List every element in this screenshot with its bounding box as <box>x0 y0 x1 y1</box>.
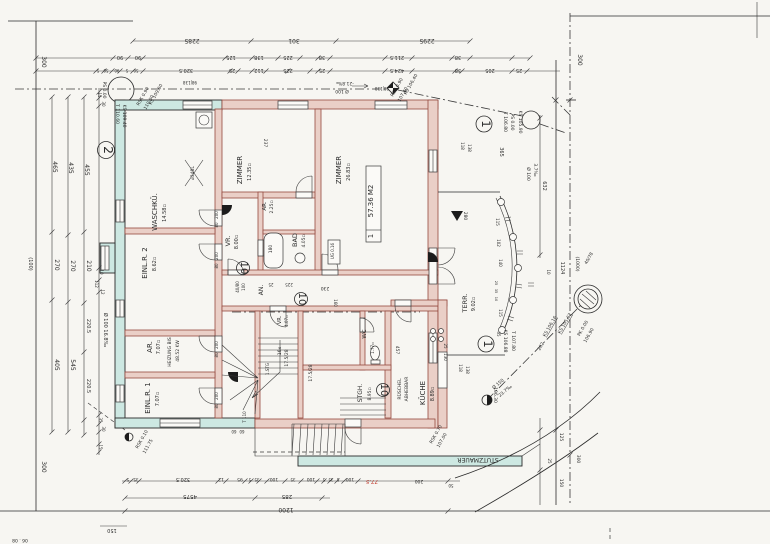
plan-label: T 106.80 <box>502 111 508 132</box>
stove-burner <box>439 329 444 334</box>
plan-label: AN. <box>258 285 265 296</box>
plan-label: 115 <box>495 218 500 226</box>
plan-label: 1 <box>367 234 375 238</box>
plan-label: 8.00▫ <box>234 235 240 250</box>
plan-label: 200 <box>214 392 219 400</box>
plan-label: 1124 <box>559 262 565 275</box>
plan-label: 95 <box>237 476 243 482</box>
plan-label: 9.02▫ <box>471 297 477 312</box>
plan-label: 35 <box>98 417 103 423</box>
plan-label: 112 <box>254 67 264 73</box>
plan-label: 320.5 <box>176 476 190 482</box>
plan-label: 06 . 08 <box>12 537 28 543</box>
plan-label: 12 <box>218 476 224 482</box>
plan-label: 4575 <box>183 493 197 499</box>
stove-burner <box>439 337 444 342</box>
plan-label: 220.5 <box>85 379 91 393</box>
plan-label: 1.STG <box>265 363 270 375</box>
plan-label: STUTZMAUER <box>457 456 498 463</box>
plan-label: 40/78 <box>583 251 595 265</box>
plan-label: 300 <box>575 455 581 464</box>
plan-label: 35 <box>494 289 498 293</box>
label-layer: 22853012295909012513822538211.5385509055… <box>12 37 596 543</box>
plan-label: 15 <box>98 444 103 450</box>
plan-label: 25 <box>443 343 448 349</box>
plan-label: 200 <box>214 341 219 349</box>
plan-label: 38 <box>319 54 325 60</box>
plan-label: 25 <box>268 282 274 287</box>
plan-label: 26.83▫ <box>346 163 352 181</box>
plan-label: 35 <box>290 477 296 482</box>
plan-label: ZIMMER <box>335 156 343 184</box>
plan-label: 12 <box>100 289 105 295</box>
plan-label: T 110.60 <box>114 103 120 124</box>
plan-label: 77.5 <box>365 478 378 484</box>
rsk-point-icon <box>482 395 492 405</box>
plan-label: UG 0.16 <box>330 242 335 259</box>
window <box>429 150 437 172</box>
plan-label: 285 <box>281 493 292 499</box>
plan-label: 80 <box>214 403 219 409</box>
plan-label: 2285 <box>184 37 199 44</box>
plan-label: 125 <box>226 54 236 60</box>
plan-label: 12.35▫ <box>247 163 253 181</box>
plan-label: 365 <box>498 147 504 157</box>
plan-label: 435 <box>67 162 74 174</box>
plan-label: TERR. <box>461 294 469 314</box>
plan-label: 30 <box>101 426 106 432</box>
plan-label: 100 <box>270 476 279 482</box>
toilet-tank <box>371 360 380 364</box>
plan-label: AR. <box>262 201 268 210</box>
plan-label: 138 <box>465 366 470 374</box>
stove-burner <box>431 329 436 334</box>
plan-label: 465 <box>51 161 58 173</box>
plan-label: 424.5 <box>390 67 404 73</box>
plan-label: 8.89▫ <box>430 387 436 402</box>
plan-label: 118 <box>458 364 463 372</box>
plan-label: 160 <box>333 299 338 307</box>
plan-label: 5 <box>322 477 325 482</box>
circled-mark-label: 10 <box>378 384 389 397</box>
stove-burner <box>431 337 436 342</box>
window <box>375 101 407 109</box>
exterior-stair <box>253 424 345 456</box>
circled-mark-label: 10 <box>238 262 249 275</box>
plan-label: 30 <box>101 101 106 107</box>
window <box>116 300 124 317</box>
plan-label: 220.5 <box>85 319 91 333</box>
plan-label: WC <box>362 329 368 338</box>
plan-label: KÜCHE <box>418 381 427 405</box>
plan-label: 35 <box>133 477 139 482</box>
plan-label: 35 <box>328 477 334 482</box>
plan-label: 7.07▫ <box>155 392 161 407</box>
plan-label: 25 <box>319 67 325 73</box>
plan-label: Ø 100 16.8‰ <box>102 313 109 348</box>
plan-label: 200 <box>415 478 424 484</box>
plan-label: VR. <box>277 315 283 324</box>
plan-label: 457 <box>394 346 400 355</box>
circled-mark-label: 1 <box>481 340 495 348</box>
plan-label: RÜSCHEL <box>396 378 403 400</box>
plan-label: 405 <box>53 359 60 371</box>
plan-label: 80 <box>214 352 219 358</box>
plan-label: 225 <box>283 54 293 60</box>
plan-label: 5 <box>248 477 251 482</box>
plan-label: HEIZUNG BIS <box>167 337 173 367</box>
washbasin <box>295 253 305 263</box>
plan-label: (1000) <box>574 257 580 272</box>
plan-label: 25 <box>516 67 522 73</box>
plan-label: STGH. <box>357 384 364 403</box>
plan-label: Ø 100 <box>525 167 532 181</box>
window <box>160 419 200 427</box>
plan-label: T 110 <box>242 411 247 424</box>
plan-label: 25 <box>547 458 552 464</box>
plan-label: BAD <box>291 233 299 247</box>
plan-label: 25 <box>494 281 498 285</box>
plan-label: 180 <box>268 245 274 254</box>
plan-label: 300 <box>576 54 583 66</box>
plan-label: 138 <box>254 54 264 60</box>
plan-label: 35 <box>496 331 501 337</box>
plan-label: KS 105.90 <box>517 111 523 134</box>
plan-label: 10 <box>494 297 498 301</box>
plan-label: 1.77▫ <box>370 342 375 354</box>
plan-label: 200 <box>214 252 219 260</box>
plan-label: KS 106.88 <box>502 330 508 353</box>
window <box>183 101 212 109</box>
plan-label: 300 <box>40 461 47 473</box>
plan-label: 211.5 <box>390 54 404 60</box>
plan-label: 138 <box>467 144 472 152</box>
plan-label: 8.95▫ <box>367 387 373 400</box>
plan-label: 90 <box>117 54 123 60</box>
plan-label: 270 <box>53 259 60 271</box>
floor-plan-svg: 22853012295909012513822538211.5385509055… <box>0 0 770 544</box>
washing-machine <box>196 112 212 128</box>
plan-label: 2295 <box>419 37 434 44</box>
manhole-top-left <box>108 77 134 103</box>
plan-label: 102 <box>496 239 501 247</box>
plan-label: 280 <box>462 212 468 221</box>
scanned-floor-plan-page: 22853012295909012513822538211.5385509055… <box>0 0 770 544</box>
plan-label: 150 <box>107 527 117 533</box>
circled-mark-label: 1 <box>479 120 493 128</box>
plan-label: 16x <box>277 346 283 355</box>
plan-label: 90 <box>135 54 141 60</box>
manhole-top-right <box>522 111 540 129</box>
plan-label: 3.7‰ <box>532 163 538 176</box>
plan-label: 10 <box>546 269 551 275</box>
plan-label: 50 <box>103 68 109 73</box>
plan-label: 5 <box>96 68 99 73</box>
plan-label: 2.25▫ <box>269 200 275 213</box>
plan-label: 1200 <box>278 506 293 513</box>
plan-label: 35 <box>254 477 260 482</box>
plan-label: VR. <box>224 236 232 247</box>
plan-label: 60 <box>239 429 245 434</box>
plan-label: 210 <box>85 260 92 272</box>
plan-label: EINL.R. 2 <box>141 247 149 278</box>
plan-label: 112 <box>94 280 99 288</box>
plan-label: (100) <box>27 257 33 270</box>
plan-label: 230 <box>321 285 330 291</box>
plan-label: 80 <box>214 263 219 269</box>
plan-label: KS 105.62 <box>557 312 574 335</box>
plan-label: 140 <box>498 259 503 267</box>
plan-label: 50 <box>448 483 454 488</box>
window <box>116 385 124 402</box>
plan-label: 38 <box>455 67 461 73</box>
plan-label: 17.5/28 <box>284 349 290 366</box>
plan-label: 632 <box>541 181 547 191</box>
door <box>296 176 312 198</box>
plan-label: 320.5 <box>179 67 193 73</box>
plan-label: 14.58▫ <box>162 204 168 222</box>
plan-label: 7.07▫ <box>156 340 162 355</box>
driveway <box>255 392 600 512</box>
column-icon <box>510 297 517 304</box>
plan-label: 125 <box>558 433 564 442</box>
plan-label: 270 <box>69 260 76 272</box>
window <box>116 200 124 222</box>
plan-label: 17.5/28 <box>308 364 314 381</box>
plan-label: 300 <box>40 56 47 68</box>
plan-label: Ø 100 <box>335 88 349 95</box>
door <box>345 419 361 444</box>
plan-label: ⌀348L <box>190 166 196 180</box>
window <box>278 101 308 109</box>
rsk-point-small-icon <box>125 433 133 441</box>
plan-label: 100 <box>241 283 246 291</box>
plan-label: 57.36 M2 <box>367 185 375 218</box>
plan-label: 130 <box>443 353 448 361</box>
plan-label: PS 0.00 <box>509 113 515 130</box>
plan-label: 5 <box>125 68 128 73</box>
plan-label: 80 <box>214 222 219 228</box>
plan-label: 5 <box>336 477 339 482</box>
column-icon <box>510 234 517 241</box>
door-leaf-wedge-icon <box>222 205 232 215</box>
plan-label: ABHEBBAR <box>404 377 410 402</box>
plan-label: 225 <box>285 282 293 287</box>
plan-label: 40/80 <box>235 281 240 293</box>
column-icon <box>515 265 522 272</box>
plan-label: 4.05▫ <box>301 234 307 247</box>
plan-label: T 107.80 <box>510 330 516 351</box>
plan-label: 60 <box>231 429 237 434</box>
plan-label: 48.52 KW <box>175 340 181 362</box>
plan-label: 115 <box>498 309 503 317</box>
plan-label: 98|138 <box>183 80 198 85</box>
plan-label: ZIMMER <box>236 156 244 184</box>
plan-label: 225 <box>283 67 293 73</box>
plan-label: 545 <box>69 359 76 371</box>
plan-label: -21.8‰ <box>336 80 354 86</box>
plan-label: WASCHKÜ. <box>150 193 159 231</box>
column-icon <box>498 199 505 206</box>
plan-label: 8.62▫ <box>152 257 158 272</box>
plan-label: 150 <box>558 479 564 488</box>
bay-window <box>101 246 109 270</box>
plan-label: 38 <box>455 54 461 60</box>
plan-label: PS 0.00 <box>101 81 107 98</box>
level-triangle-icon <box>451 211 463 221</box>
plan-label: Ø 150 <box>491 377 506 391</box>
plan-label: 5 <box>126 477 129 482</box>
plan-label: 100 <box>307 476 316 482</box>
plan-label: 301 <box>288 37 300 44</box>
walls <box>100 100 522 466</box>
circled-mark-label: 2 <box>101 146 115 154</box>
plan-label: 282 <box>536 341 546 352</box>
plan-label: 50 <box>133 68 139 73</box>
plan-label: 4.07▫ <box>284 315 289 327</box>
plan-label: 25 <box>229 67 235 73</box>
plan-label: KS 109.40 <box>121 105 127 128</box>
plan-label: EINL.R. 1 <box>144 382 152 413</box>
door-leaf-wedge-icon <box>228 372 238 382</box>
plan-label: AR. <box>146 341 154 353</box>
plan-label: 205 <box>485 67 495 73</box>
plan-label: 10 <box>99 269 104 275</box>
circled-mark-label: 10 <box>296 293 307 306</box>
plan-label: 118 <box>460 142 465 150</box>
plan-label: 90 <box>114 68 120 73</box>
plan-label: 237 <box>262 139 268 148</box>
plan-label: 98|138 <box>375 86 390 91</box>
plan-label: 455 <box>83 164 90 176</box>
plan-label: 100 <box>346 476 355 482</box>
plan-label: 200 <box>214 211 219 219</box>
